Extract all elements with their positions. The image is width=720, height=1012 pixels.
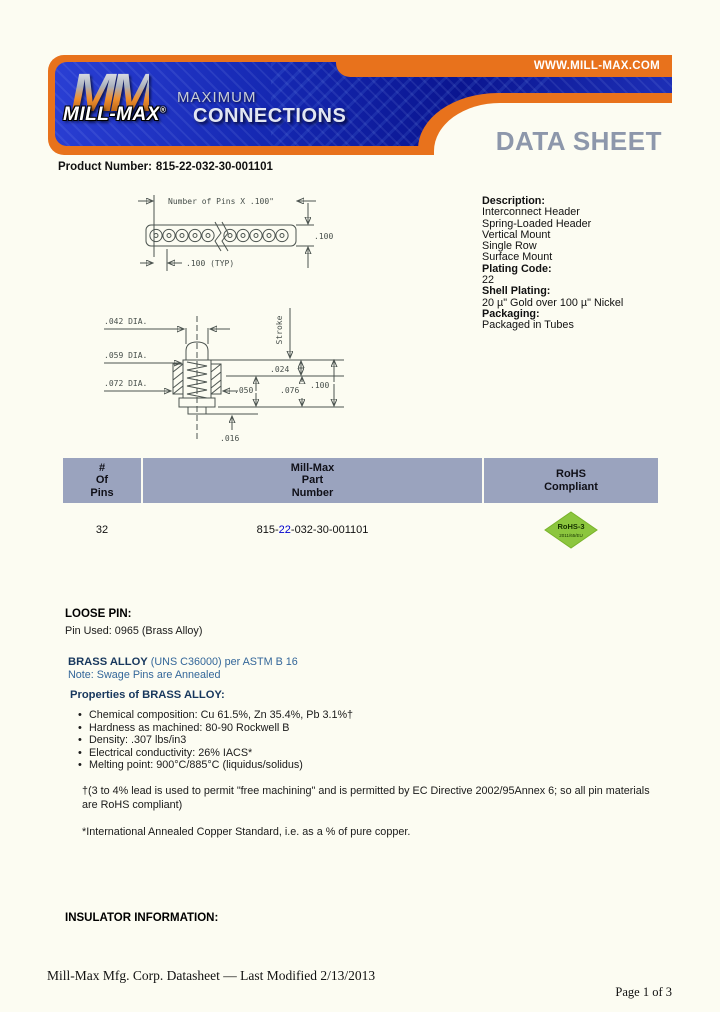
- col-pins-line: #: [99, 462, 105, 475]
- property-item: Melting point: 900°C/885°C (liquidus/sol…: [78, 759, 353, 772]
- part-table-row: 32 815-22-032-30-001101 RoHS-3 2011/65/E…: [63, 509, 658, 551]
- property-item: Chemical composition: Cu 61.5%, Zn 35.4%…: [78, 709, 353, 722]
- description-block: Description: Interconnect Header Spring-…: [482, 196, 682, 332]
- col-pins-line: Of: [96, 474, 108, 487]
- brass-alloy-title-line: BRASS ALLOY (UNS C36000) per ASTM B 16: [68, 656, 298, 668]
- packaging-value: Packaged in Tubes: [482, 320, 682, 331]
- rohs-badge-cell: RoHS-3 2011/65/EU: [484, 509, 658, 551]
- col-part-line: Mill-Max: [291, 462, 334, 475]
- brass-properties-heading: Properties of BRASS ALLOY:: [70, 689, 225, 701]
- stroke-label: Stroke: [275, 315, 284, 344]
- brass-alloy-title-detail: (UNS C36000) per ASTM B 16: [151, 656, 298, 668]
- property-item: Hardness as machined: 80-90 Rockwell B: [78, 722, 353, 735]
- pin-used-text: Pin Used: 0965 (Brass Alloy): [65, 625, 202, 637]
- website-link-bar[interactable]: WWW.MILL-MAX.COM: [336, 55, 672, 77]
- product-number-value: 815-22-032-30-001101: [156, 161, 273, 173]
- dim-059-label: .059 DIA.: [104, 351, 147, 360]
- insulator-heading: INSULATOR INFORMATION:: [65, 912, 218, 924]
- pin-row-drawing: Number of Pins X .100" .100 .100 (TYP): [138, 191, 344, 279]
- data-sheet-title: DATA SHEET: [496, 128, 662, 154]
- millmax-wordmark-text: MILL-MAX: [63, 104, 160, 125]
- iacs-footnote: *International Annealed Copper Standard,…: [82, 826, 662, 840]
- header-banner: MM MILL-MAX® MAXIMUM CONNECTIONS WWW.MIL…: [48, 55, 672, 155]
- col-header-pins: # Of Pins: [63, 458, 141, 503]
- dim-076-label: .076: [280, 386, 299, 395]
- col-part-line: Part: [302, 474, 323, 487]
- product-number-line: Product Number:815-22-032-30-001101: [58, 161, 277, 173]
- dim-100-label: .100: [310, 381, 329, 390]
- dim-050-label: .050: [234, 386, 253, 395]
- footer-source-text: Mill-Max Mfg. Corp. Datasheet — Last Mod…: [47, 968, 375, 984]
- lead-footnote: †(3 to 4% lead is used to permit "free m…: [82, 785, 662, 812]
- part-number-cell: 815-22-032-30-001101: [143, 509, 482, 551]
- col-header-part-number: Mill-Max Part Number: [143, 458, 482, 503]
- tagline-connections: CONNECTIONS: [193, 105, 346, 128]
- brass-alloy-note: Note: Swage Pins are Annealed: [68, 669, 220, 681]
- tagline-maximum: MAXIMUM: [177, 89, 257, 106]
- dim-072-label: .072 DIA.: [104, 379, 147, 388]
- registered-mark: ®: [160, 106, 166, 115]
- col-part-line: Number: [292, 487, 334, 500]
- col-pins-line: Pins: [90, 487, 113, 500]
- part-table: # Of Pins Mill-Max Part Number RoHS Comp…: [63, 458, 658, 551]
- millmax-wordmark: MILL-MAX®: [63, 104, 166, 126]
- col-rohs-line: Compliant: [544, 481, 598, 494]
- part-number-prefix: 815-: [257, 524, 279, 536]
- plating-code-link[interactable]: 22: [279, 524, 291, 536]
- property-item: Electrical conductivity: 26% IACS*: [78, 747, 353, 760]
- plating-code-label: Plating Code:: [482, 264, 682, 275]
- website-url[interactable]: WWW.MILL-MAX.COM: [534, 60, 660, 72]
- rohs-badge-line2: 2011/65/EU: [559, 533, 582, 538]
- brass-properties-list: Chemical composition: Cu 61.5%, Zn 35.4%…: [78, 709, 353, 772]
- shell-plating-label: Shell Plating:: [482, 286, 682, 297]
- product-number-label: Product Number:: [58, 161, 152, 173]
- pins-count-cell: 32: [63, 509, 141, 551]
- footer-page-number: Page 1 of 3: [615, 985, 672, 1000]
- col-header-rohs: RoHS Compliant: [484, 458, 658, 503]
- part-table-header: # Of Pins Mill-Max Part Number RoHS Comp…: [63, 458, 658, 503]
- loose-pin-heading: LOOSE PIN:: [65, 608, 131, 620]
- dim-016-label: .016: [220, 434, 239, 443]
- pin-cross-section-drawing: .042 DIA. .059 DIA. .072 DIA. Stroke .02…: [98, 298, 348, 448]
- property-item: Density: .307 lbs/in3: [78, 734, 353, 747]
- rohs-compliant-badge-icon: RoHS-3 2011/65/EU: [543, 511, 599, 549]
- description-line: Interconnect Header: [482, 207, 682, 218]
- row-top-dim-label: Number of Pins X .100": [168, 197, 274, 206]
- brass-alloy-title: BRASS ALLOY: [68, 656, 148, 668]
- dim-042-label: .042 DIA.: [104, 317, 147, 326]
- dim-024-label: .024: [270, 365, 289, 374]
- col-rohs-line: RoHS: [556, 468, 586, 481]
- row-pitch-dim-label: .100 (TYP): [186, 259, 234, 268]
- rohs-badge-line1: RoHS-3: [557, 522, 584, 531]
- row-right-dim-label: .100: [314, 232, 333, 241]
- part-number-suffix: -032-30-001101: [291, 524, 368, 536]
